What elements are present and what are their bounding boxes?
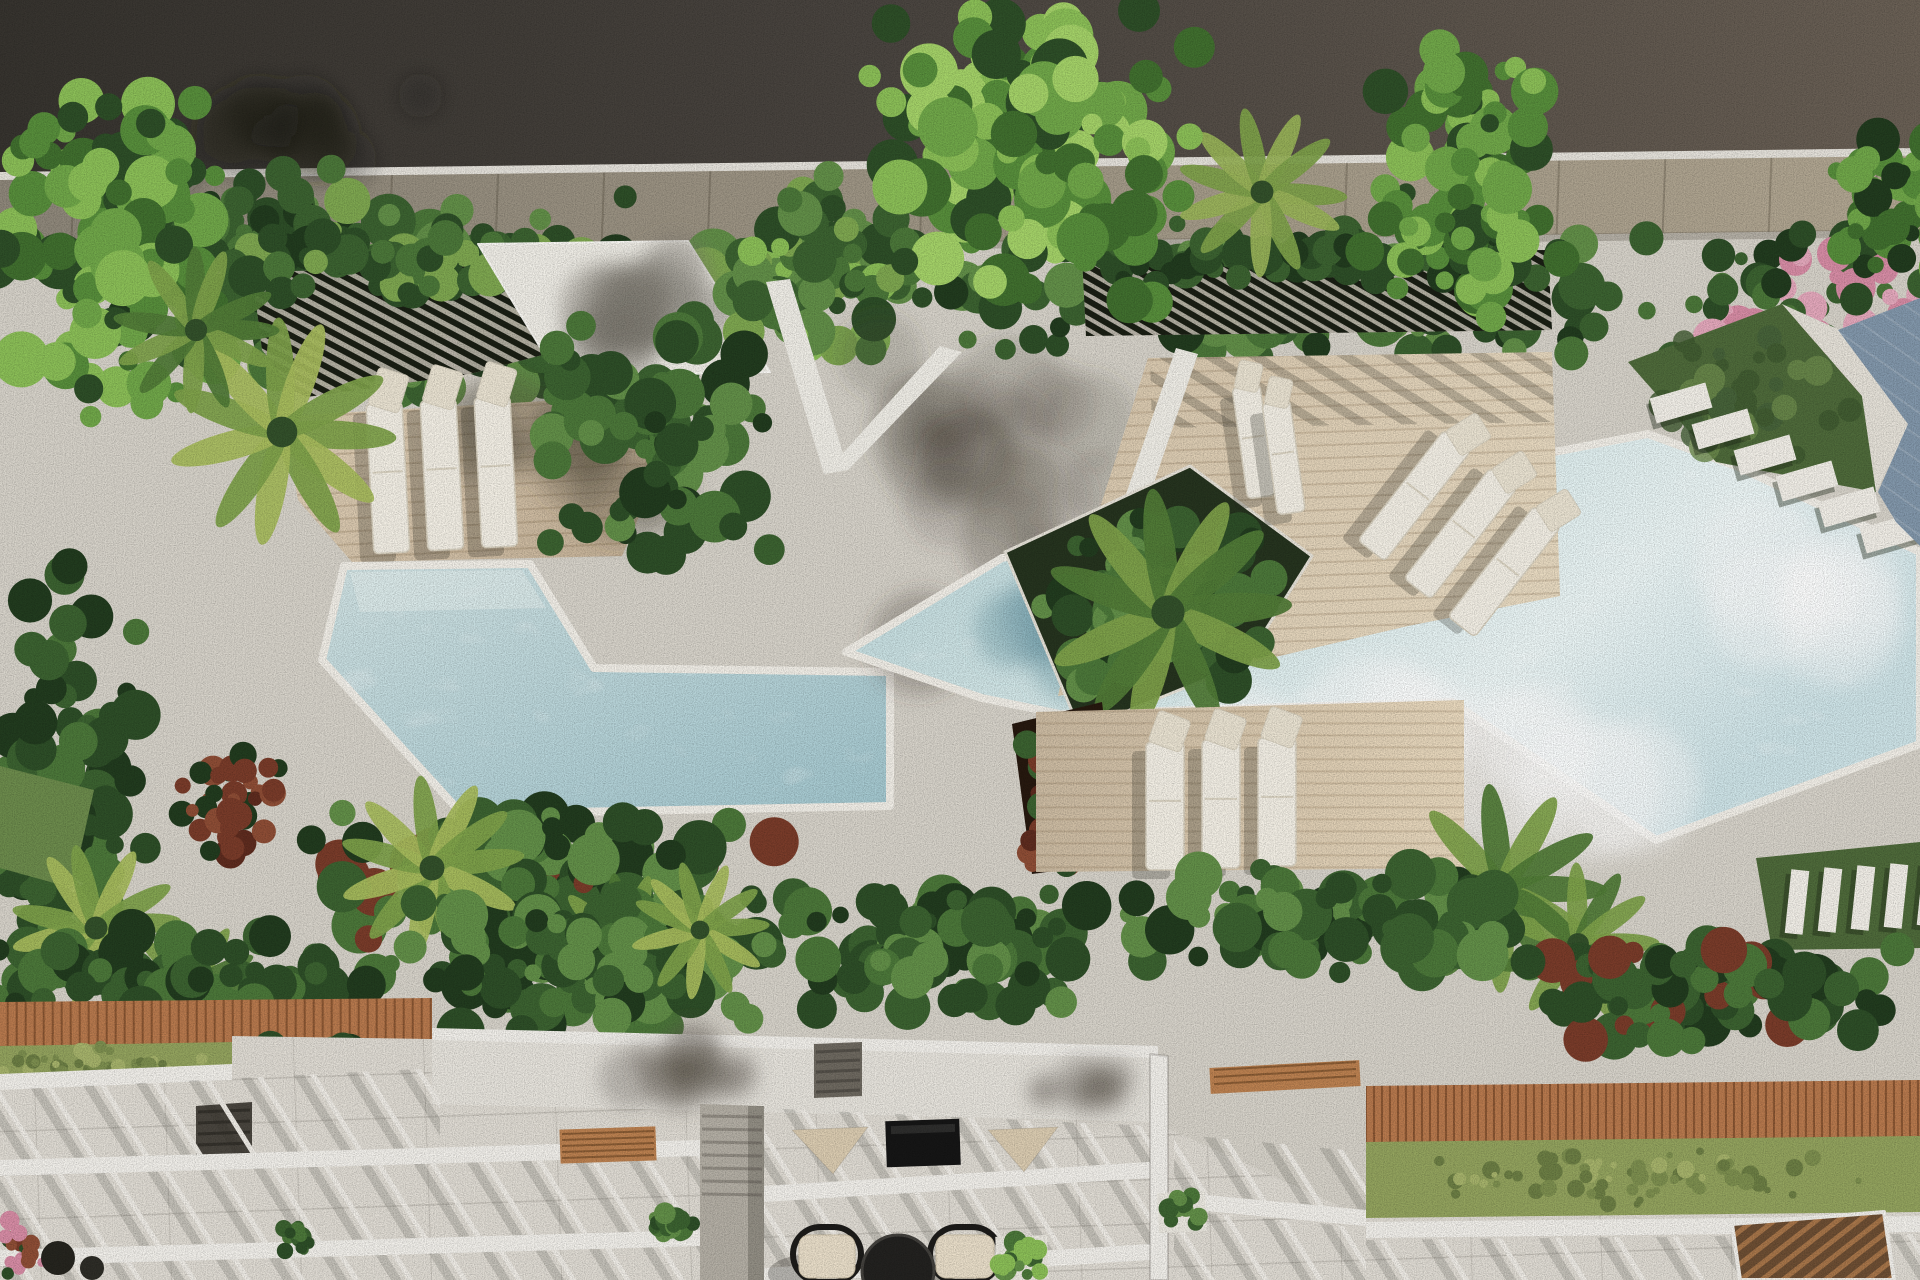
aerial-courtyard-render — [0, 0, 1920, 1280]
scene — [0, 0, 1920, 1280]
photo-grain — [0, 0, 1920, 1280]
